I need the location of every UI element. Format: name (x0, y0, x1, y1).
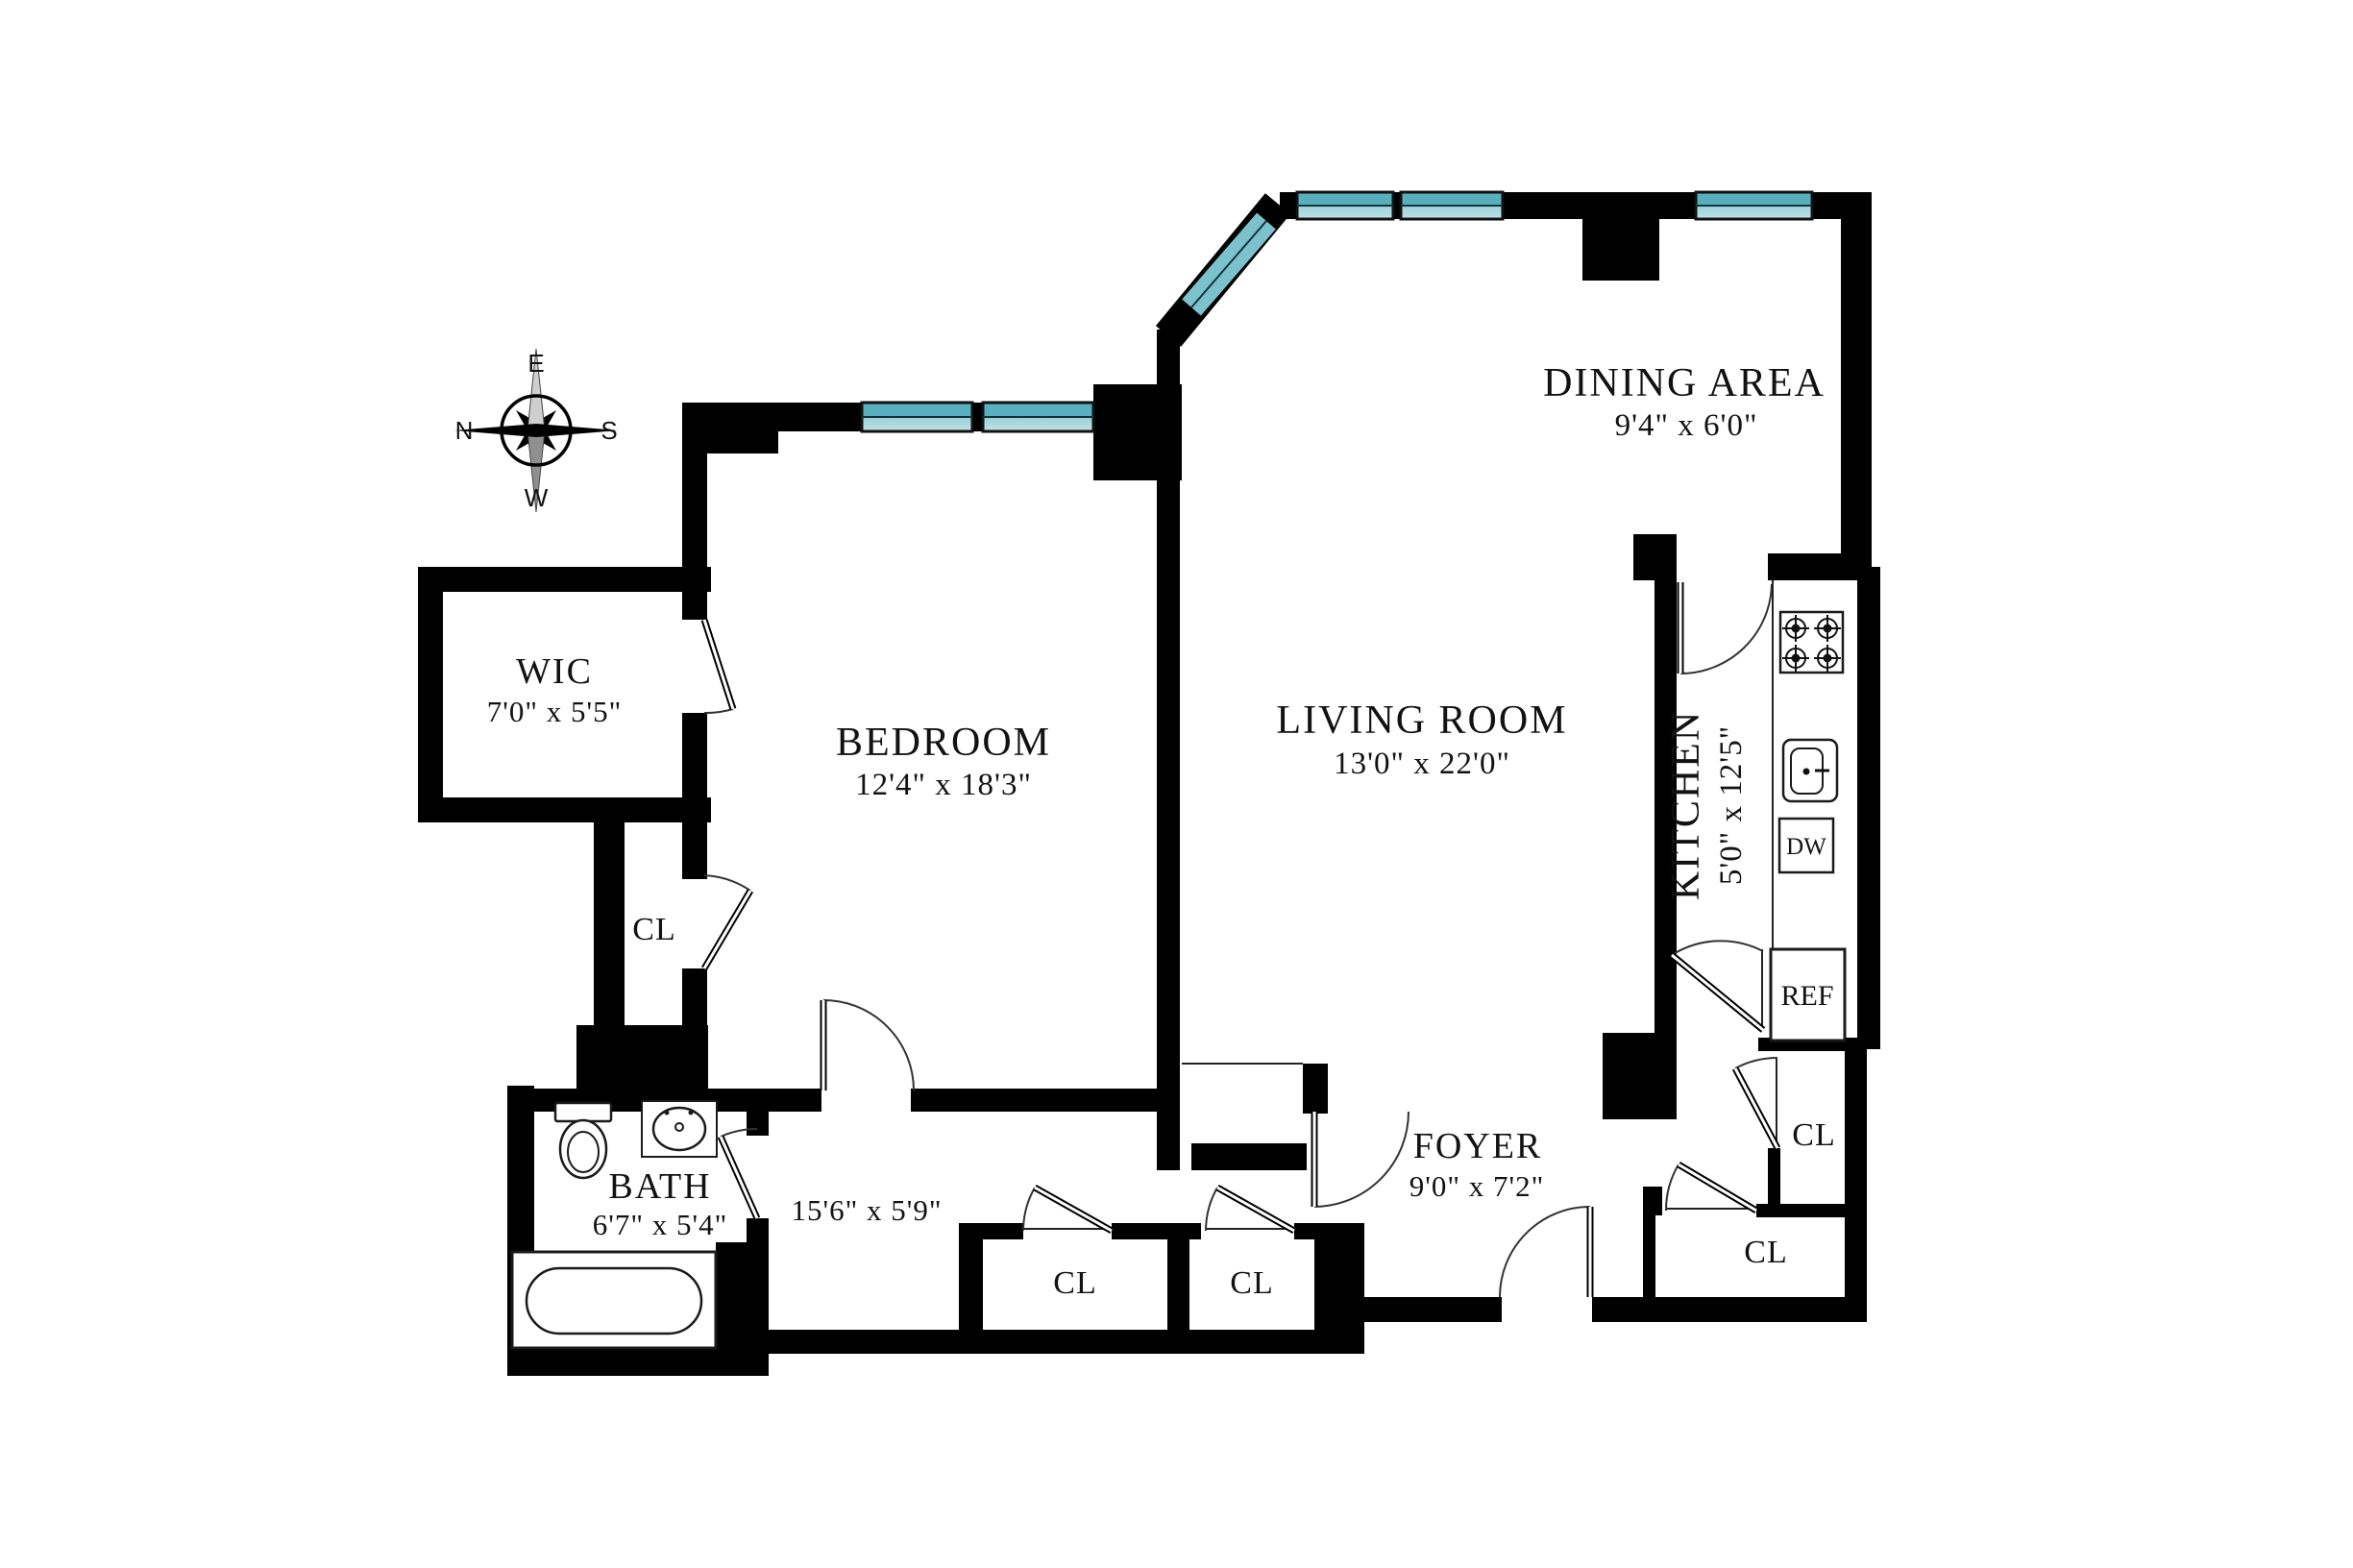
wall-outer-below-wic (594, 822, 625, 1029)
dishwasher-label: DW (1786, 834, 1826, 860)
window-bedroom-2 (983, 403, 1093, 431)
refrigerator-icon: REF (1771, 949, 1845, 1041)
wall-vestibule-stub-b (1643, 1187, 1662, 1215)
room-label-bath: BATH (608, 1166, 711, 1207)
wall-wic-bottom (418, 797, 711, 822)
bathtub-icon (512, 1252, 716, 1348)
wall-kitchen-right (1857, 567, 1880, 1049)
compass-north: N (455, 416, 474, 445)
wall-right-lower (1845, 1049, 1867, 1322)
floorplan-page: DW REF E W N S WIC 7'0" x 5'5" BEDROOM 1… (0, 0, 2353, 1568)
refrigerator-label: REF (1780, 980, 1833, 1012)
toilet-icon (555, 1103, 611, 1178)
compass-south: S (601, 416, 617, 445)
wall-niche-band (1191, 1143, 1307, 1170)
room-dims-wic: 7'0" x 5'5" (487, 695, 622, 728)
wall-living-top-c (1503, 192, 1696, 219)
wall-hallcloset-mid (1167, 1239, 1189, 1330)
wall-hallcloset-top-a (959, 1223, 1023, 1239)
room-label-dining: DINING AREA (1543, 361, 1826, 405)
room-label-foyer: FOYER (1413, 1126, 1543, 1166)
room-label-kitchen: KITCHEN (1664, 710, 1708, 900)
wall-bedroom-top (682, 403, 862, 431)
wall-bedroom-left-c (682, 968, 707, 1092)
closet-label-hall-1: CL (1053, 1265, 1096, 1301)
wall-lowercl-left (1643, 1215, 1655, 1297)
closet-label-hall-2: CL (1230, 1265, 1273, 1301)
room-dims-dining: 9'4" x 6'0" (1615, 408, 1758, 443)
wall-bedroom-window-gap (972, 403, 983, 431)
wall-kitchen-cap (1633, 534, 1677, 580)
room-dims-kitchen: 5'0" x 12'5" (1714, 725, 1749, 885)
bath-sink-icon (642, 1101, 717, 1157)
room-dims-living: 13'0" x 22'0" (1334, 747, 1510, 781)
room-dims-bath: 6'7" x 5'4" (593, 1208, 727, 1241)
floorplan-canvas: DW REF E W N S WIC 7'0" x 5'5" BEDROOM 1… (0, 0, 2353, 1568)
wall-uppercl-left (1768, 1148, 1780, 1204)
wall-hallcloset-top-c (1294, 1223, 1314, 1239)
wall-hall-bottom (759, 1330, 1364, 1354)
window-living-2 (1401, 192, 1503, 219)
wall-wic-top (418, 567, 711, 592)
wall-bath-door-stub (747, 1112, 769, 1136)
stove-icon (1780, 612, 1843, 673)
wall-vestibule-stub-a (1641, 1042, 1655, 1117)
compass-east: E (527, 349, 544, 378)
closet-label-bedroom: CL (632, 912, 675, 947)
wall-hallcloset-left-jamb (959, 1223, 983, 1354)
wall-niche-stub (1303, 1064, 1328, 1114)
wall-foyer-bottom-b (1592, 1297, 1867, 1322)
wall-hallcloset-top-b (1112, 1223, 1201, 1239)
wall-foyer-bottom-a (1364, 1297, 1502, 1322)
room-dims-foyer: 9'0" x 7'2" (1409, 1169, 1544, 1203)
wall-foyer-stub-block (1603, 1033, 1677, 1119)
room-label-wic: WIC (516, 651, 593, 692)
window-bedroom-1 (862, 403, 972, 431)
window-living-1 (1297, 192, 1393, 219)
wall-right-upper (1841, 192, 1872, 580)
wall-foyer-left-block (1314, 1223, 1364, 1354)
wall-bath-bottom (507, 1348, 769, 1376)
wall-kitchen-top (1768, 553, 1872, 580)
wall-pillar (1582, 219, 1659, 281)
window-dining (1696, 192, 1812, 219)
room-label-living: LIVING ROOM (1276, 698, 1567, 743)
room-label-bedroom: BEDROOM (836, 721, 1051, 765)
kitchen-sink-icon (1783, 740, 1837, 801)
wall-wic-left (418, 567, 443, 822)
wall-hall-top-right (911, 1089, 1157, 1112)
dishwasher-icon: DW (1779, 819, 1833, 872)
room-dims-hallway: 15'6" x 5'9" (792, 1193, 943, 1227)
closet-label-upper: CL (1792, 1117, 1835, 1153)
compass-west: W (525, 483, 549, 512)
room-dims-bedroom: 12'4" x 18'3" (855, 768, 1032, 802)
wall-bedroom-living-divider (1157, 330, 1180, 1170)
wall-bedroom-left-b (682, 713, 707, 879)
closet-label-lower: CL (1744, 1235, 1787, 1270)
wall-cl-divider (1756, 1204, 1845, 1217)
